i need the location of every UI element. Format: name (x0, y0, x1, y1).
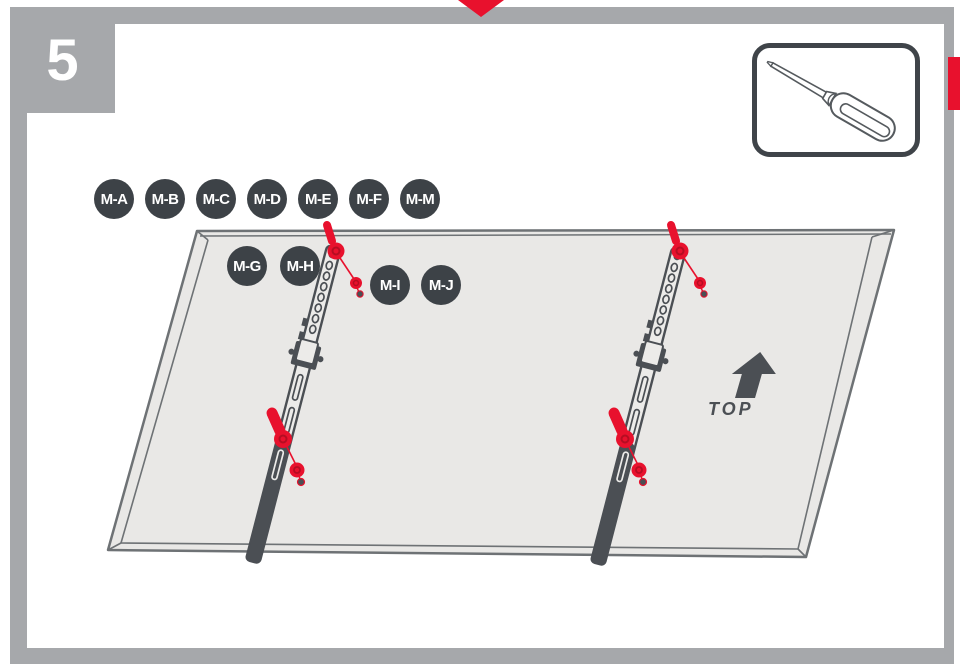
tv-back-panel (108, 230, 894, 557)
badge-m-b: M-B (145, 179, 185, 219)
badge-m-d: M-D (247, 179, 287, 219)
red-edge-tab (948, 57, 960, 110)
badge-m-f: M-F (349, 179, 389, 219)
frame-band-bottom (10, 648, 954, 664)
tool-callout-box (752, 43, 920, 157)
badge-m-h: M-H (280, 246, 320, 286)
badge-m-e: M-E (298, 179, 338, 219)
badge-m-a: M-A (94, 179, 134, 219)
badge-m-i: M-I (370, 265, 410, 305)
top-label: TOP (708, 399, 754, 419)
step-number: 5 (46, 27, 78, 94)
badge-m-g: M-G (227, 246, 267, 286)
screwdriver-icon (757, 48, 915, 152)
step-number-box: 5 (10, 7, 115, 113)
badge-m-m: M-M (400, 179, 440, 219)
badge-m-c: M-C (196, 179, 236, 219)
red-down-arrow-icon (458, 0, 504, 17)
badge-m-j: M-J (421, 265, 461, 305)
